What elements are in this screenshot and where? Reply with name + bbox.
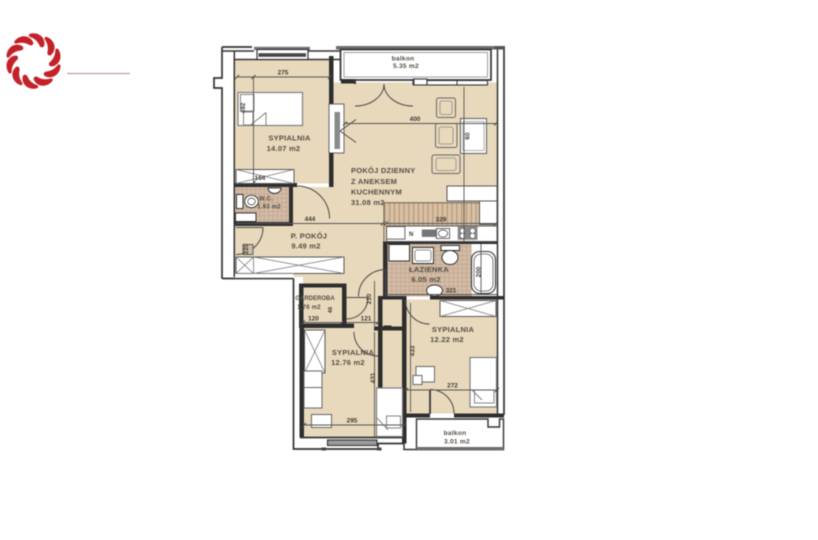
svg-text:60: 60: [465, 132, 472, 140]
svg-text:433: 433: [410, 345, 417, 356]
svg-text:321: 321: [446, 288, 457, 295]
svg-text:GARDEROBA: GARDEROBA: [295, 296, 335, 302]
svg-text:272: 272: [447, 383, 458, 390]
svg-text:5.35 m2: 5.35 m2: [393, 63, 419, 70]
svg-text:P. POKÓJ: P. POKÓJ: [291, 232, 327, 241]
svg-text:Z ANEKSEM: Z ANEKSEM: [351, 177, 397, 186]
svg-text:1.93 m2: 1.93 m2: [257, 205, 281, 211]
svg-text:48: 48: [328, 307, 334, 313]
svg-text:444: 444: [305, 216, 316, 223]
svg-text:492: 492: [240, 102, 247, 113]
svg-text:220: 220: [243, 243, 250, 254]
svg-text:SYPIALNIA: SYPIALNIA: [332, 348, 375, 357]
svg-text:12.76 m2: 12.76 m2: [331, 358, 365, 367]
svg-text:KUCHENNYM: KUCHENNYM: [351, 188, 402, 197]
svg-text:W.C.: W.C.: [259, 197, 273, 203]
svg-text:SYPIALNIA: SYPIALNIA: [268, 134, 311, 143]
svg-text:N: N: [409, 232, 413, 238]
svg-text:12.22 m2: 12.22 m2: [430, 335, 464, 344]
svg-text:121: 121: [361, 316, 372, 323]
svg-text:SYPIALNIA: SYPIALNIA: [432, 325, 475, 334]
svg-text:200: 200: [476, 266, 483, 277]
svg-text:275: 275: [278, 70, 289, 77]
svg-text:31.08 m2: 31.08 m2: [351, 198, 385, 207]
svg-text:9.49 m2: 9.49 m2: [291, 242, 320, 251]
svg-text:3.01 m2: 3.01 m2: [444, 439, 470, 446]
svg-text:1.76 m2: 1.76 m2: [297, 305, 321, 311]
svg-text:14.07 m2: 14.07 m2: [267, 144, 301, 153]
svg-text:balkon: balkon: [444, 430, 467, 437]
svg-text:ŁAZIENKA: ŁAZIENKA: [409, 265, 449, 274]
svg-text:400: 400: [410, 116, 421, 123]
svg-text:164: 164: [255, 175, 266, 182]
svg-text:329: 329: [436, 217, 447, 224]
svg-text:431: 431: [370, 372, 377, 383]
svg-text:295: 295: [347, 418, 358, 425]
svg-text:210: 210: [366, 293, 373, 304]
svg-text:POKÓJ DZIENNY: POKÓJ DZIENNY: [351, 166, 416, 175]
svg-text:6.05 m2: 6.05 m2: [411, 275, 440, 284]
svg-text:120: 120: [308, 316, 319, 323]
svg-text:balkon: balkon: [392, 56, 415, 63]
